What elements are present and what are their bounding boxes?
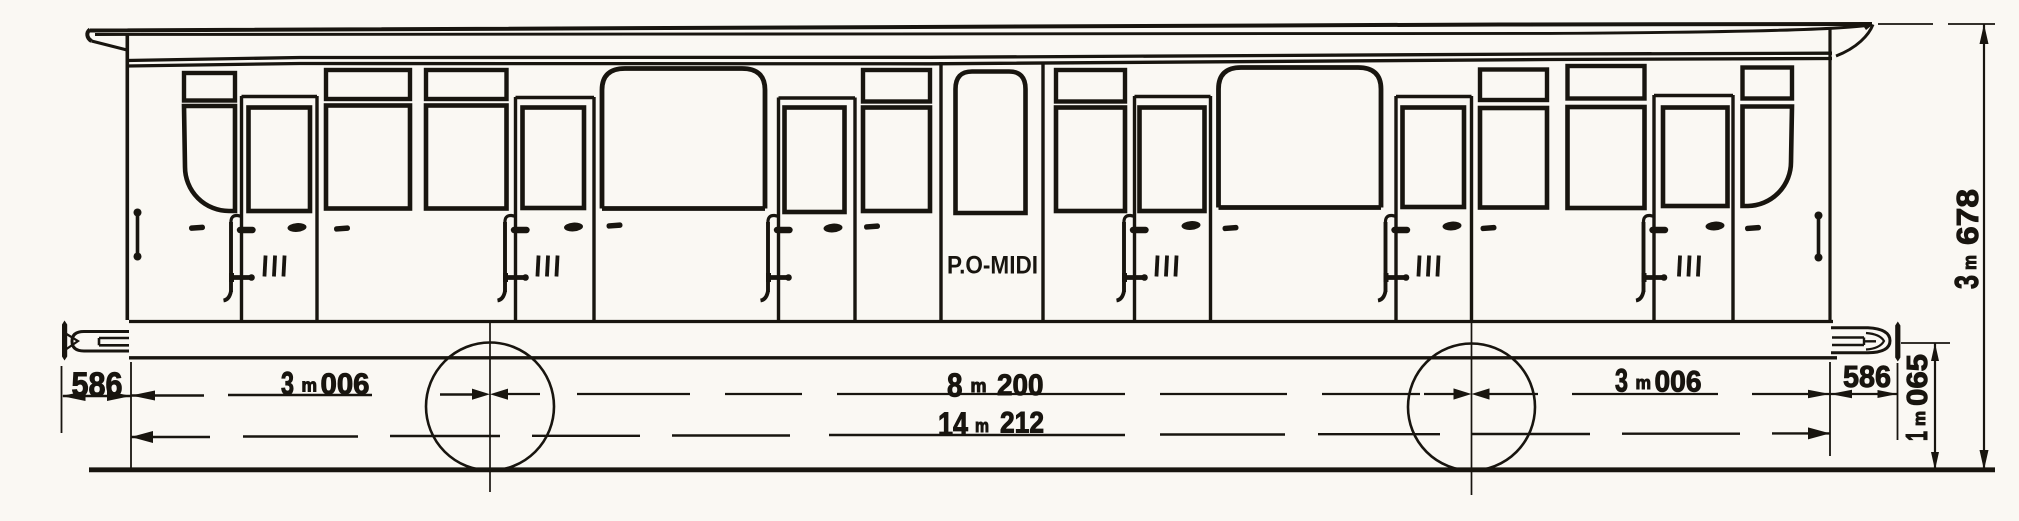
svg-text:3: 3 — [1615, 363, 1628, 399]
svg-text:212: 212 — [1000, 407, 1044, 440]
svg-text:P.O-MIDI: P.O-MIDI — [947, 252, 1038, 280]
svg-text:m: m — [971, 376, 987, 396]
svg-text:m: m — [1636, 373, 1652, 393]
svg-text:678: 678 — [1950, 189, 1985, 245]
svg-text:006: 006 — [321, 368, 370, 401]
svg-text:1: 1 — [1899, 431, 1934, 441]
svg-text:200: 200 — [997, 369, 1044, 402]
svg-text:3: 3 — [281, 366, 294, 402]
svg-text:3: 3 — [1948, 275, 1985, 289]
svg-text:14: 14 — [938, 406, 969, 443]
svg-text:m: m — [1960, 255, 1980, 270]
svg-text:8: 8 — [947, 367, 963, 404]
svg-text:m: m — [302, 376, 318, 396]
svg-text:586: 586 — [72, 366, 123, 404]
svg-text:586: 586 — [1843, 359, 1891, 394]
svg-text:006: 006 — [1655, 366, 1702, 399]
svg-text:m: m — [975, 416, 989, 436]
svg-text:065: 065 — [1902, 354, 1934, 406]
svg-text:m: m — [1910, 411, 1929, 426]
